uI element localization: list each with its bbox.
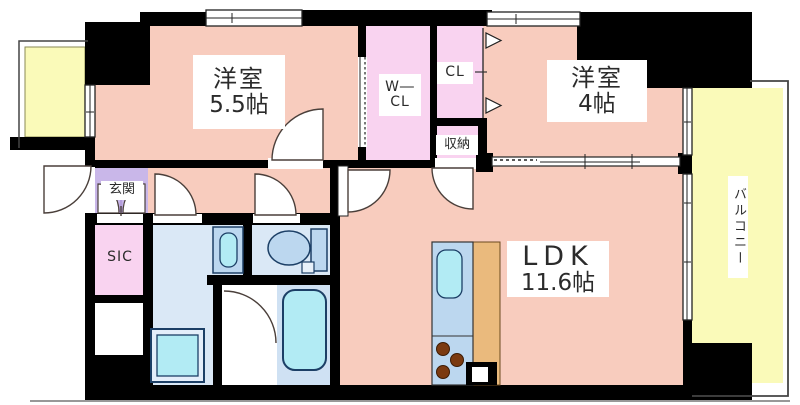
wall-segment xyxy=(95,160,268,168)
wall-segment xyxy=(692,343,752,393)
wcl-line1: W― xyxy=(385,80,415,95)
wcl-line2: CL xyxy=(390,95,410,110)
side-balcony-floor xyxy=(25,47,85,137)
wall-segment xyxy=(10,137,88,150)
wall-segment xyxy=(358,26,366,57)
bathtub-icon xyxy=(283,290,326,370)
storage-label: 収納 xyxy=(436,135,478,155)
bedroom1-name: 洋室 xyxy=(213,67,265,93)
wall-segment xyxy=(358,147,366,168)
wall-segment xyxy=(476,153,493,172)
wall-segment xyxy=(683,320,692,393)
washing-machine-icon xyxy=(151,329,204,382)
kitchen-counter xyxy=(432,242,500,385)
bedroom2-name: 洋室 xyxy=(571,66,623,92)
wall-segment xyxy=(437,118,478,126)
floor-plan-drawing xyxy=(0,0,800,405)
ldk-size: 11.6帖 xyxy=(521,271,595,296)
wall-segment xyxy=(213,275,222,385)
wall-segment xyxy=(330,163,338,217)
bedroom1-top-window xyxy=(206,10,302,26)
balcony-label: バルコニー xyxy=(728,176,748,278)
balcony-text: バルコニー xyxy=(731,187,745,267)
sic-label: SIC xyxy=(98,246,142,270)
wall-segment xyxy=(85,385,752,400)
bedroom2-label: 洋室 4帖 xyxy=(547,60,647,122)
bedroom1-side-window xyxy=(85,85,95,137)
bedroom1-label: 洋室 5.5帖 xyxy=(193,55,285,129)
entrance-label: 玄関 xyxy=(101,181,143,200)
bedroom2-balcony-window xyxy=(683,88,692,155)
wall-segment xyxy=(85,22,150,85)
wall-segment xyxy=(243,213,252,285)
bedroom2-top-window xyxy=(487,12,580,26)
wall-segment xyxy=(296,10,492,26)
pipe-space-inner xyxy=(472,367,488,382)
doorway xyxy=(338,166,348,216)
bedroom2-size: 4帖 xyxy=(578,92,616,117)
wall-segment xyxy=(85,355,153,400)
wall-segment xyxy=(330,213,340,393)
kitchen-sink-icon xyxy=(437,250,462,298)
walk-in-closet-opening xyxy=(358,57,367,147)
void-space xyxy=(95,297,143,355)
floor-plan: 洋室 5.5帖 洋室 4帖 LDK 11.6帖 W― CL CL 収納 玄関 S… xyxy=(0,0,800,405)
wall-segment xyxy=(140,12,212,26)
closet-label: CL xyxy=(437,62,473,84)
front-door-swing-icon xyxy=(44,166,91,213)
ldk-balcony-window xyxy=(683,174,692,320)
walk-in-closet-label: W― CL xyxy=(379,74,421,116)
entrance-text: 玄関 xyxy=(109,183,135,197)
storage-text: 収納 xyxy=(444,138,470,152)
wall-segment xyxy=(207,275,330,285)
doorway xyxy=(97,214,143,223)
ldk-name: LDK xyxy=(522,242,594,271)
sic-text: SIC xyxy=(107,250,133,265)
closet-text: CL xyxy=(445,65,465,80)
vanity-sink-icon xyxy=(213,227,243,273)
ldk-label: LDK 11.6帖 xyxy=(507,241,609,297)
bedroom1-size: 5.5帖 xyxy=(209,93,269,118)
wall-segment xyxy=(85,295,153,303)
